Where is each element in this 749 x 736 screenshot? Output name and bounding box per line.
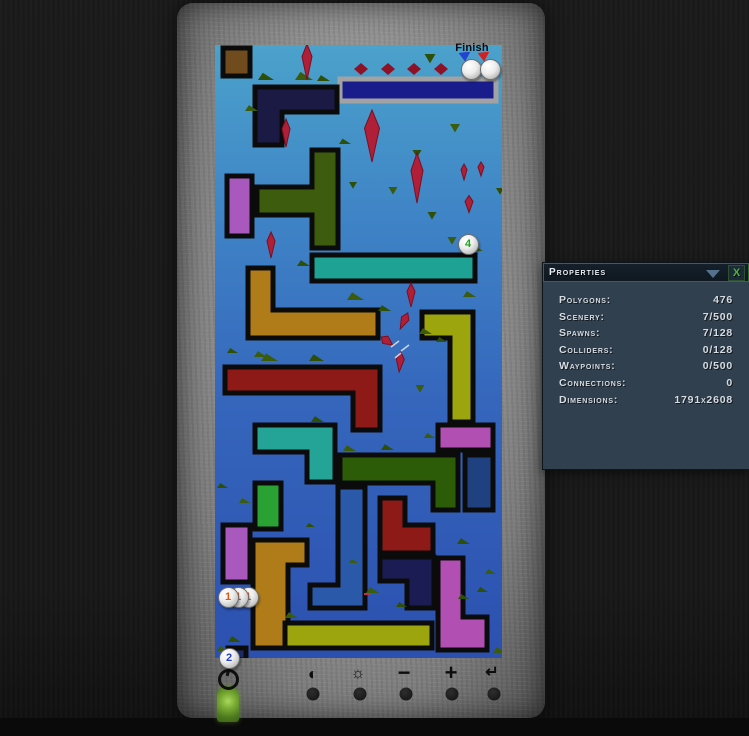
finish-diamond[interactable]	[434, 63, 448, 75]
level-graphics	[215, 45, 502, 658]
crystal-spike[interactable]	[461, 164, 467, 180]
crystal-spike[interactable]	[267, 232, 275, 258]
crystal-spike[interactable]	[411, 153, 423, 203]
property-label: Polygons:	[559, 294, 611, 311]
property-label: Connections:	[559, 377, 626, 394]
return-icon[interactable]: ↵	[485, 665, 498, 681]
level-piece-green-t[interactable]	[257, 150, 338, 248]
scenery-triangle[interactable]	[416, 385, 425, 393]
scenery-triangle[interactable]	[428, 212, 437, 220]
property-row: Spawns:7/128	[543, 327, 749, 344]
property-row: Waypoints:0/500	[543, 360, 749, 377]
finish-diamond[interactable]	[407, 63, 421, 75]
level-piece-teal-l2[interactable]	[255, 425, 335, 482]
level-piece-purple-j[interactable]	[438, 558, 487, 650]
property-label: Spawns:	[559, 327, 600, 344]
scenery-triangle[interactable]	[448, 237, 457, 245]
sparkle	[401, 345, 409, 351]
scenery-triangle[interactable]	[317, 75, 330, 81]
power-button[interactable]	[216, 665, 240, 689]
scenery-triangle[interactable]	[239, 498, 250, 503]
level-piece-purple-vert[interactable]	[223, 525, 250, 582]
level-piece-blue-j[interactable]	[310, 487, 365, 608]
waypoint-marker-4[interactable]: 4	[458, 234, 479, 255]
level-piece-teal-bar[interactable]	[312, 255, 475, 281]
contrast-icon[interactable]: ◐	[308, 666, 318, 683]
level-piece-magenta-bar[interactable]	[438, 425, 493, 450]
power-indicator	[217, 686, 239, 722]
level-piece-maroon-l[interactable]	[225, 367, 380, 430]
level-canvas[interactable]	[215, 45, 502, 658]
brightness-icon[interactable]: ☼	[351, 666, 366, 682]
collapse-chevron-icon[interactable]	[706, 270, 720, 278]
scenery-triangle[interactable]	[425, 54, 436, 63]
property-label: Waypoints:	[559, 360, 616, 377]
scenery-triangle[interactable]	[366, 587, 379, 593]
scenery-triangle[interactable]	[477, 587, 488, 592]
crystal-spike[interactable]	[478, 162, 484, 176]
finish-diamond[interactable]	[381, 63, 395, 75]
properties-panel: Properties X Polygons:476Scenery:7/500Sp…	[542, 262, 749, 470]
property-value: 7/500	[703, 311, 733, 328]
level-piece-olive-l-right[interactable]	[422, 312, 473, 422]
scenery-triangle[interactable]	[378, 305, 391, 311]
scenery-triangle[interactable]	[381, 444, 394, 450]
property-value: 1791x2608	[674, 394, 733, 411]
crystal-spike[interactable]	[465, 196, 473, 213]
level-piece-brown-square[interactable]	[223, 48, 250, 76]
level-piece-navy-l2[interactable]	[380, 557, 434, 608]
waypoint-marker-1[interactable]: 1	[218, 587, 239, 608]
toolbar-knob[interactable]	[307, 688, 320, 701]
property-value: 7/128	[703, 327, 733, 344]
scenery-triangle[interactable]	[347, 292, 364, 300]
level-piece-olive-bar[interactable]	[285, 623, 432, 648]
property-label: Dimensions:	[559, 394, 618, 411]
scenery-triangle[interactable]	[311, 416, 324, 422]
scenery-triangle[interactable]	[306, 523, 315, 527]
property-row: Dimensions:1791x2608	[543, 394, 749, 411]
crystal-spike[interactable]	[407, 283, 415, 307]
properties-titlebar[interactable]: Properties X	[543, 263, 749, 282]
waypoint-marker-2[interactable]: 2	[219, 648, 240, 669]
level-piece-navy-vert[interactable]	[465, 455, 493, 510]
scenery-triangle[interactable]	[424, 433, 435, 438]
scenery-triangle[interactable]	[297, 260, 310, 266]
properties-rows: Polygons:476Scenery:7/500Spawns:7/128Col…	[543, 294, 749, 410]
toolbar-knob[interactable]	[488, 688, 501, 701]
scenery-triangle[interactable]	[389, 187, 398, 195]
scenery-triangle[interactable]	[258, 73, 274, 80]
scenery-triangle[interactable]	[227, 348, 238, 353]
properties-title: Properties	[544, 267, 606, 278]
finish-diamond[interactable]	[354, 63, 368, 75]
scenery-triangle[interactable]	[463, 291, 476, 297]
level-piece-purple-rect[interactable]	[227, 176, 252, 236]
close-icon[interactable]: X	[728, 265, 745, 281]
property-label: Scenery:	[559, 311, 605, 328]
scenery-triangle[interactable]	[309, 354, 324, 361]
property-row: Polygons:476	[543, 294, 749, 311]
start-flag[interactable]	[461, 59, 482, 80]
finish-flag[interactable]	[480, 59, 501, 80]
property-row: Scenery:7/500	[543, 311, 749, 328]
bottom-bar	[0, 718, 749, 736]
property-value: 476	[713, 294, 733, 311]
toolbar-knob[interactable]	[446, 688, 459, 701]
property-row: Colliders:0/128	[543, 344, 749, 361]
scenery-triangle[interactable]	[457, 538, 470, 544]
scenery-triangle[interactable]	[217, 483, 228, 488]
scenery-triangle[interactable]	[339, 139, 351, 144]
finish-label: Finish	[450, 42, 494, 54]
scenery-triangle[interactable]	[349, 182, 357, 189]
property-value: 0/500	[703, 360, 733, 377]
property-row: Connections:0	[543, 377, 749, 394]
scenery-triangle[interactable]	[450, 124, 460, 133]
crystal-spike[interactable]	[365, 110, 380, 162]
scenery-triangle[interactable]	[493, 647, 502, 653]
scenery-triangle[interactable]	[496, 188, 502, 195]
scenery-triangle[interactable]	[485, 569, 496, 574]
level-piece-navy-l[interactable]	[255, 87, 337, 145]
scenery-triangle[interactable]	[295, 72, 313, 80]
toolbar-knob[interactable]	[354, 688, 367, 701]
property-value: 0/128	[703, 344, 733, 361]
editor-window: Finish 11124 ◐☼−+↵ Properties X Polygons…	[0, 0, 749, 736]
property-value: 0	[726, 377, 733, 394]
scenery-triangle[interactable]	[261, 353, 278, 361]
zoom-out-icon[interactable]: −	[398, 662, 411, 684]
toolbar-knob[interactable]	[400, 688, 413, 701]
finish-platform[interactable]	[340, 79, 496, 101]
level-piece-green-vert[interactable]	[255, 483, 281, 529]
scenery-triangle[interactable]	[228, 636, 241, 642]
property-label: Colliders:	[559, 344, 613, 361]
level-piece-maroon-step[interactable]	[380, 498, 433, 553]
zoom-in-icon[interactable]: +	[445, 662, 458, 684]
crystal-spike[interactable]	[397, 311, 412, 331]
scenery-triangle[interactable]	[343, 445, 356, 451]
scenery-triangle[interactable]	[254, 351, 267, 357]
